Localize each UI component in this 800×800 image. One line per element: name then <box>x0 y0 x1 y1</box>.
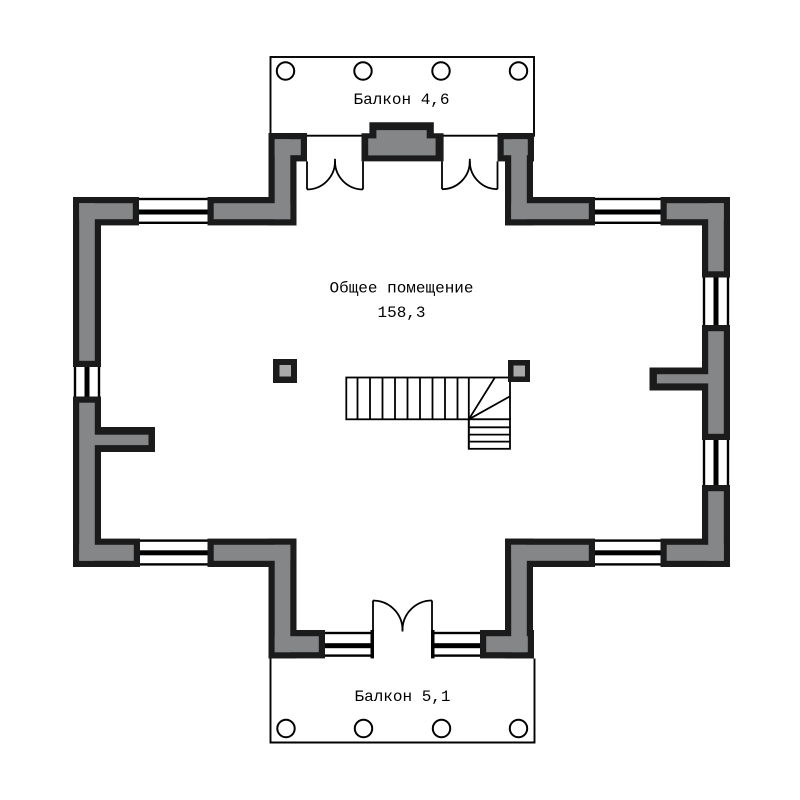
svg-text:Балкон 5,1: Балкон 5,1 <box>354 688 450 706</box>
svg-text:Общее помещение: Общее помещение <box>329 280 473 298</box>
svg-text:158,3: 158,3 <box>377 304 425 322</box>
svg-text:Балкон 4,6: Балкон 4,6 <box>353 91 449 109</box>
